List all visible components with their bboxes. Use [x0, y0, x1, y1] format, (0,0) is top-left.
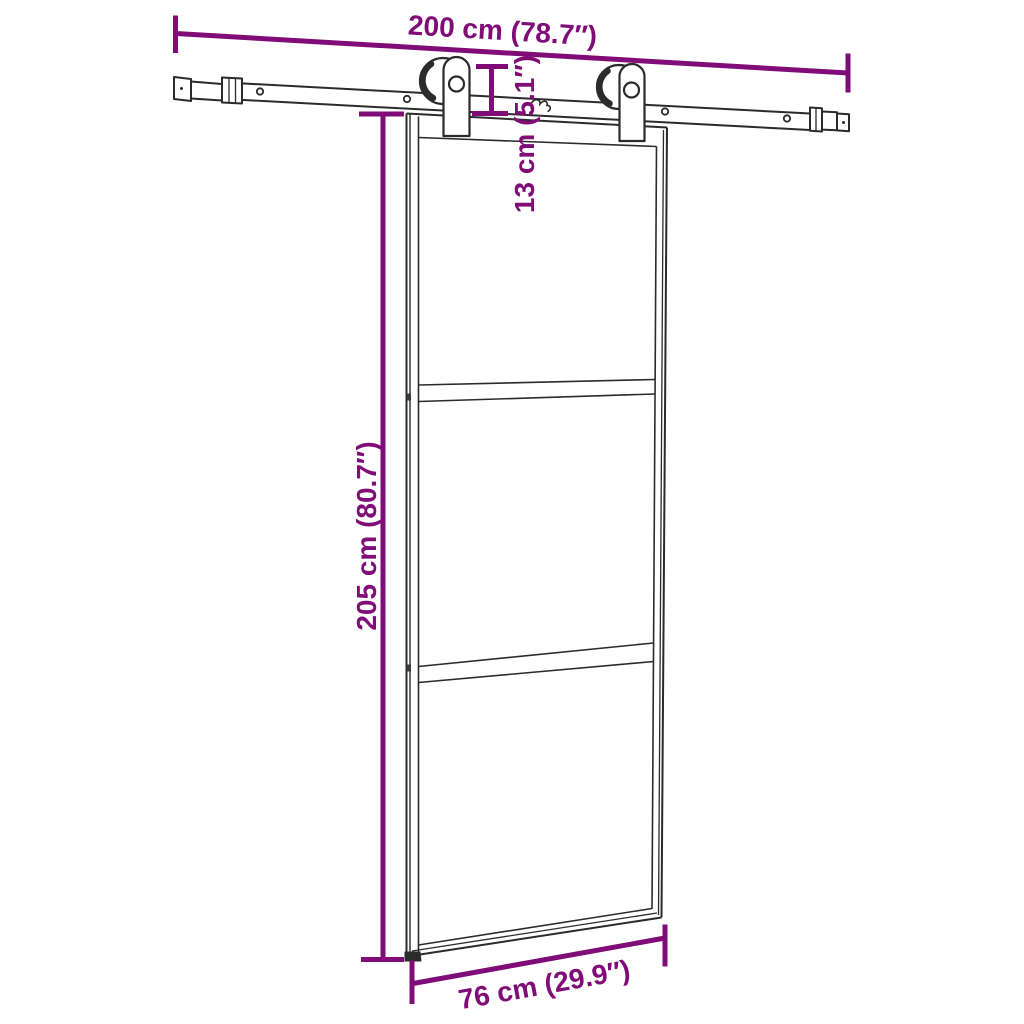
door-right-stile-glass-edge	[652, 147, 657, 910]
hanger-strap	[620, 64, 645, 141]
hanger-strap	[444, 57, 470, 136]
door-height-dimension-label: 205 cm (80.7″)	[351, 441, 382, 630]
floor-guide-foot	[405, 952, 422, 962]
track-left-connector	[191, 82, 222, 101]
hanger-height-dimension-label: 13 cm (5.1″)	[509, 55, 540, 213]
door-width-dimension: 76 cm (29.9″)	[412, 925, 665, 1016]
door-divider-rail-upper	[419, 380, 656, 402]
dimension-diagram: 200 cm (78.7″) 13 cm (5.1″) 205 cm (80.7…	[0, 0, 1024, 1024]
screw-hole-icon	[404, 96, 410, 102]
hanger-bolt-icon	[624, 83, 639, 98]
divider-bottom-line	[419, 662, 654, 683]
glass-door-panel-drawing	[405, 114, 668, 962]
door-bottom-rail-glass-edge	[419, 909, 653, 946]
divider-top-line	[419, 380, 656, 386]
door-width-dimension-label: 76 cm (29.9″)	[456, 954, 632, 1015]
track-right-connector	[822, 112, 837, 131]
door-height-dimension: 205 cm (80.7″)	[351, 114, 404, 960]
hanger-height-dimension: 13 cm (5.1″)	[472, 55, 540, 213]
stopper-pin-dot	[180, 87, 183, 90]
track-width-dimension-label: 200 cm (78.7″)	[407, 9, 598, 51]
door-bottom-edge	[407, 918, 662, 957]
screw-hole-icon	[784, 115, 790, 121]
roller-hanger-right	[597, 64, 645, 141]
hanger-bolt-icon	[449, 77, 464, 92]
diagram-canvas: 200 cm (78.7″) 13 cm (5.1″) 205 cm (80.7…	[0, 0, 1024, 1024]
screw-hole-icon	[257, 88, 263, 94]
stile-divider-mark	[407, 394, 412, 401]
track-left-collar-lines	[229, 78, 236, 104]
screw-hole-icon	[662, 108, 668, 114]
track-left-collar	[222, 78, 242, 104]
stile-divider-mark	[407, 665, 412, 672]
divider-bottom-line	[419, 394, 656, 402]
door-divider-rail-lower	[419, 643, 654, 683]
roller-hanger-left	[420, 57, 470, 136]
divider-top-line	[419, 643, 654, 667]
stopper-pin-dot	[842, 121, 845, 124]
